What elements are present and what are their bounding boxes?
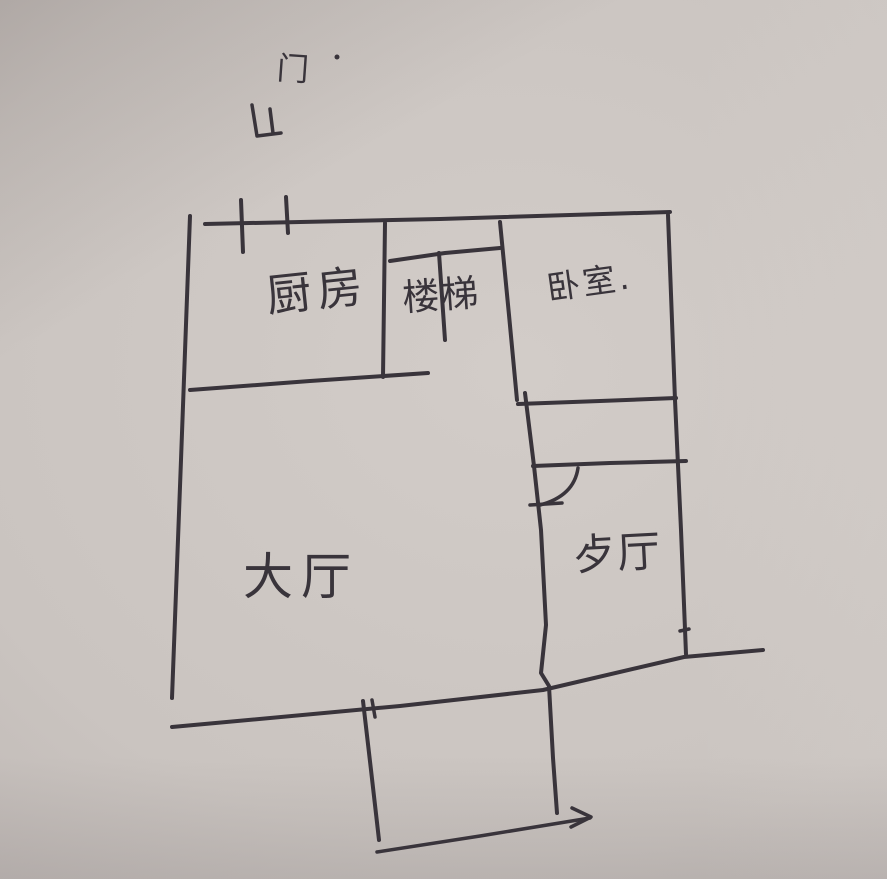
- kitchen-stairs-divider: [383, 223, 385, 377]
- right-wall-door-tick: [680, 629, 689, 631]
- ink-dot-near-door-label: [335, 55, 340, 60]
- left-wall: [172, 216, 190, 698]
- stairs-bedroom-divider: [500, 222, 517, 400]
- entrance-arrow-line: [377, 818, 590, 852]
- stairs-rail-horizontal: [390, 248, 500, 261]
- kitchen-bottom-wall: [190, 373, 428, 390]
- entry-door-tick-2: [286, 197, 288, 233]
- hall-dining-wall: [525, 393, 557, 813]
- right-wall: [668, 215, 686, 654]
- stairs-label: 楼梯: [400, 262, 482, 321]
- dining-top-wall: [533, 461, 686, 466]
- door-swing-symbol-a: [252, 105, 281, 136]
- top-wall: [205, 212, 670, 224]
- entrance-arrow-head: [571, 808, 591, 827]
- floor-plan-drawing: [0, 0, 887, 879]
- porch-wall-tick: [372, 700, 375, 717]
- dining-room-label: 歺厅: [570, 517, 663, 584]
- door-label: 门: [275, 43, 310, 91]
- bottom-wall: [172, 650, 763, 727]
- main-hall-label: 大厅: [243, 537, 359, 609]
- kitchen-label: 厨房: [263, 249, 371, 324]
- door-swing-symbol-b: [270, 109, 273, 133]
- bedroom-bottom-wall: [518, 398, 676, 404]
- entry-door-tick-1: [241, 200, 243, 252]
- porch-left-wall: [363, 701, 379, 840]
- dining-door-arc: [540, 468, 578, 505]
